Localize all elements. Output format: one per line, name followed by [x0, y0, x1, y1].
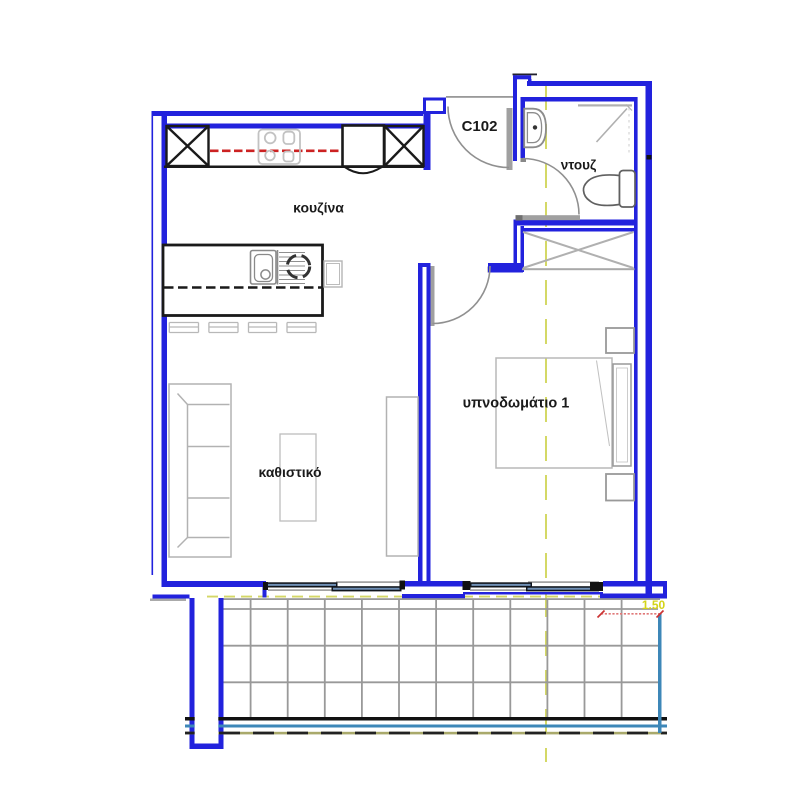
- svg-text:C102: C102: [462, 118, 498, 135]
- svg-text:υπνοδωμάτιο 1: υπνοδωμάτιο 1: [463, 396, 570, 412]
- svg-text:κουζίνα: κουζίνα: [293, 200, 344, 216]
- svg-text:1.50: 1.50: [642, 598, 666, 612]
- svg-text:ντουζ: ντουζ: [561, 158, 596, 173]
- svg-text:καθιστικό: καθιστικό: [258, 464, 321, 480]
